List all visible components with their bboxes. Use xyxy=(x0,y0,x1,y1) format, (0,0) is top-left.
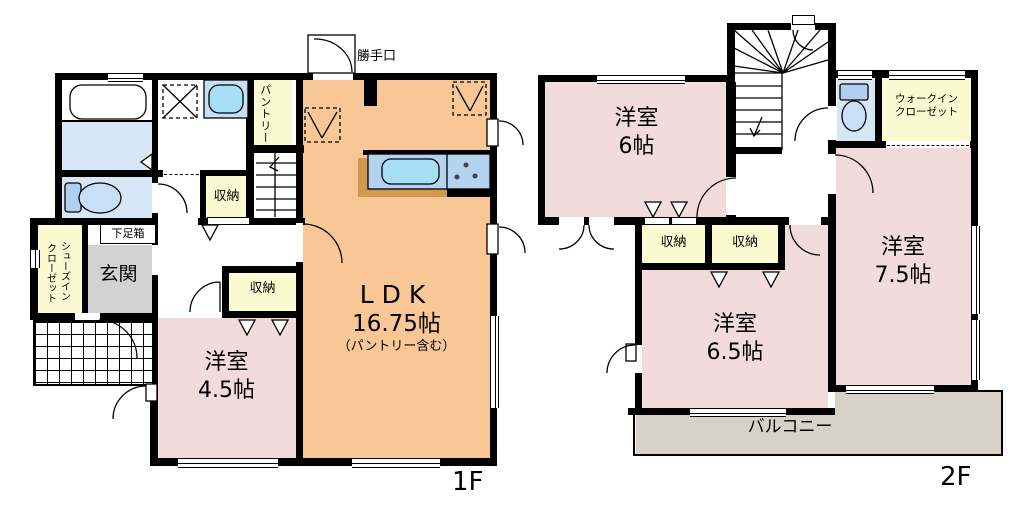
room-name: LDK xyxy=(303,279,490,310)
door-opening xyxy=(726,177,736,215)
door-opening xyxy=(152,183,158,213)
floor-plan-canvas: 勝手口 パントリー 収納 下足箱 玄関 シューズイン クローゼット 収納 洋室 … xyxy=(0,0,1020,505)
label-pantry: パントリー xyxy=(258,84,272,144)
door-opening xyxy=(490,225,497,254)
wall xyxy=(729,23,835,30)
wall xyxy=(152,80,158,170)
wall xyxy=(364,80,377,106)
room-yoshitsu65-notch xyxy=(785,225,828,270)
closet-opening xyxy=(645,218,669,224)
window xyxy=(846,385,934,394)
label-balcony: バルコニー xyxy=(640,417,940,438)
label-yoshitsu45: 洋室 4.5帖 xyxy=(157,349,296,404)
room-size: 4.5帖 xyxy=(157,377,296,405)
door-opening xyxy=(635,345,642,373)
door-opening xyxy=(490,119,497,146)
window xyxy=(490,316,499,408)
room-size: 6.5帖 xyxy=(642,339,828,367)
door-opening xyxy=(75,313,100,320)
wall xyxy=(30,225,38,320)
window xyxy=(108,73,143,82)
stair-hall-2f xyxy=(735,30,829,217)
door-opening xyxy=(828,154,836,194)
door-opening xyxy=(828,106,836,140)
balcony-rail xyxy=(1001,391,1003,456)
sliding-opening xyxy=(886,141,970,148)
window xyxy=(971,320,980,380)
label-yoshitsu75: 洋室 7.5帖 xyxy=(835,234,971,289)
door-opening xyxy=(313,73,353,80)
door-opening xyxy=(152,245,158,275)
wall xyxy=(635,270,642,415)
room-name: ウォークイン xyxy=(882,93,971,106)
floor1-label: 1F xyxy=(452,466,484,499)
floor2-label: 2F xyxy=(940,461,972,494)
wall xyxy=(734,147,782,154)
door-opening xyxy=(559,217,584,225)
entrance-porch xyxy=(33,320,154,386)
label-closet-room45: 収納 xyxy=(229,281,296,297)
wall xyxy=(296,73,303,465)
label-closet-2f-left: 収納 xyxy=(642,235,705,251)
window xyxy=(838,70,872,80)
room-name: 洋室 xyxy=(642,311,828,339)
label-closet-2f-right: 収納 xyxy=(712,235,778,251)
room-bath-washarea xyxy=(62,122,155,172)
label-sic-line1: シューズイン xyxy=(57,229,70,313)
door-opening xyxy=(296,223,303,262)
label-ldk: LDK 16.75帖 （パントリー含む） xyxy=(303,279,490,355)
label-yoshitsu65: 洋室 6.5帖 xyxy=(642,311,828,366)
room-toilet-2f xyxy=(837,78,875,141)
window xyxy=(178,458,278,468)
room-note: （パントリー含む） xyxy=(303,339,490,355)
room-size: 6帖 xyxy=(545,133,728,161)
wall xyxy=(447,189,497,197)
wall xyxy=(538,82,545,225)
balcony-rail xyxy=(633,410,635,456)
room-name: クローゼット xyxy=(882,106,971,119)
room-size: 7.5帖 xyxy=(835,262,971,290)
door-arc xyxy=(607,344,636,373)
room-toilet-1f xyxy=(62,177,152,218)
wall xyxy=(198,218,207,225)
door-arc xyxy=(559,225,614,249)
balcony-rail xyxy=(633,454,1003,456)
window xyxy=(889,70,965,80)
kitchen-back-wall xyxy=(363,150,490,155)
room-name: 洋室 xyxy=(835,234,971,262)
label-genkan: 玄関 xyxy=(85,263,152,287)
window xyxy=(30,250,40,268)
room-name: 洋室 xyxy=(157,349,296,377)
window xyxy=(690,408,786,417)
window xyxy=(597,75,685,84)
back-door-symbol xyxy=(308,35,355,73)
door-opening xyxy=(789,217,821,225)
label-katteguchi: 勝手口 xyxy=(357,49,396,65)
window xyxy=(352,458,440,468)
wall xyxy=(55,80,62,225)
wall xyxy=(727,23,735,82)
closet-door-panel xyxy=(207,217,250,225)
label-yoshitsu6: 洋室 6帖 xyxy=(545,105,728,160)
sliding-opening xyxy=(163,170,200,177)
label-sic-line2: クローゼット xyxy=(43,231,56,315)
room-ldk xyxy=(303,80,490,458)
door-opening xyxy=(589,217,614,225)
door-leaf xyxy=(792,15,815,25)
wall xyxy=(62,120,152,122)
wall xyxy=(875,78,882,148)
label-getabako: 下足箱 xyxy=(100,224,156,244)
label-closet-hall: 収納 xyxy=(200,189,253,205)
window xyxy=(971,226,980,314)
room-name: 洋室 xyxy=(545,105,728,133)
room-size: 16.75帖 xyxy=(303,310,490,339)
label-wic: ウォークイン クローゼット xyxy=(882,93,971,119)
balcony-rail xyxy=(978,390,1003,392)
closet-opening xyxy=(672,218,696,224)
wall xyxy=(252,145,304,153)
